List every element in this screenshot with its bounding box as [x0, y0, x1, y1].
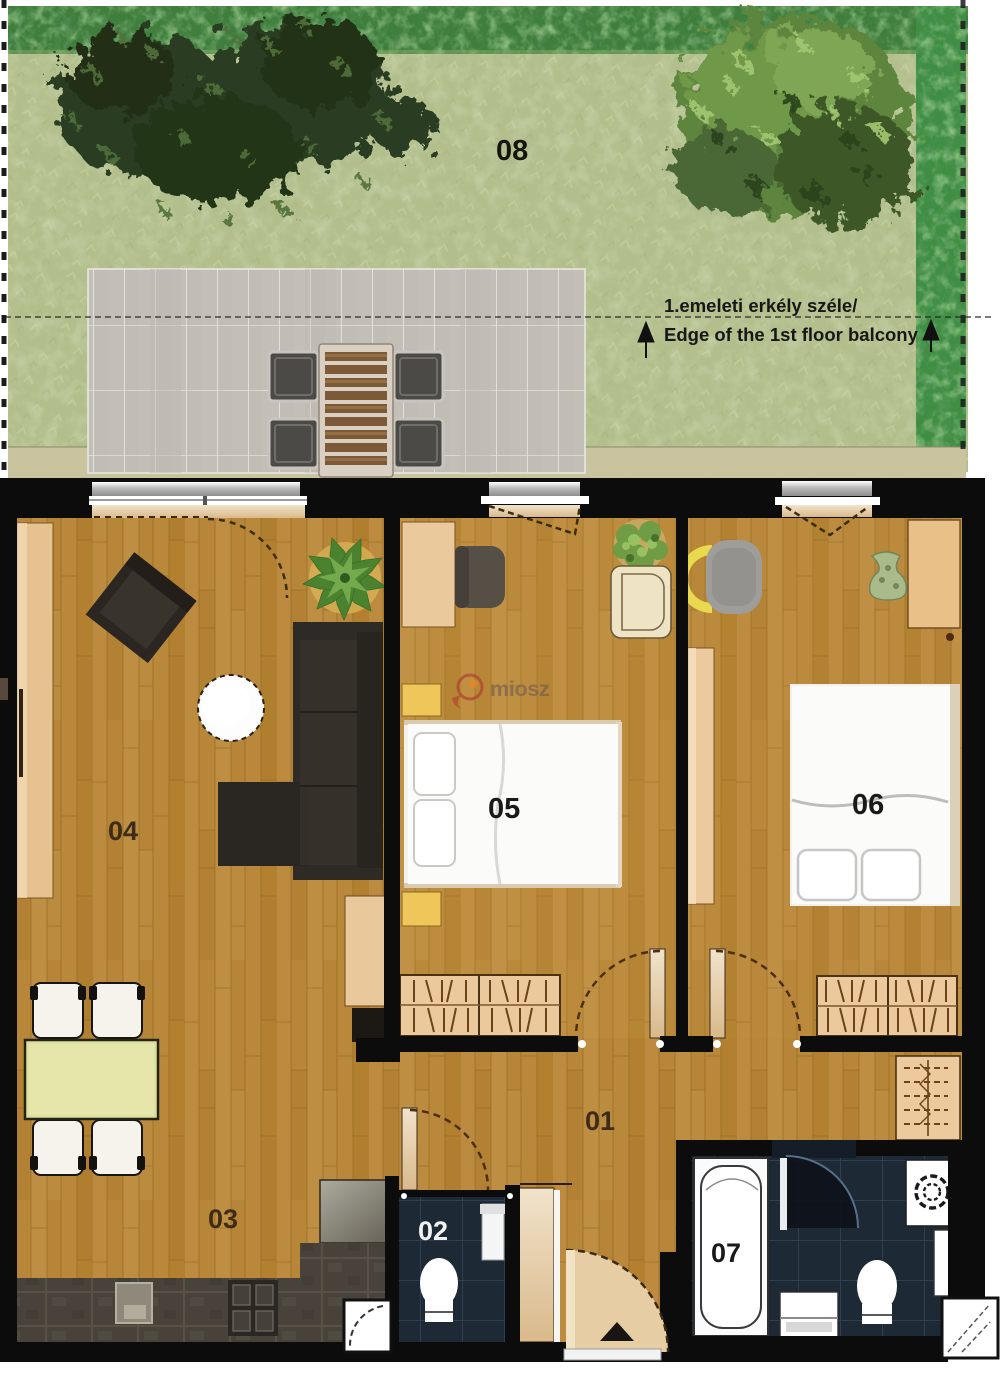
svg-text:08: 08: [496, 135, 528, 167]
svg-text:03: 03: [208, 1204, 238, 1234]
svg-text:1.emeleti erkély széle/: 1.emeleti erkély széle/: [664, 295, 857, 316]
svg-text:07: 07: [711, 1238, 741, 1268]
svg-text:06: 06: [852, 789, 884, 821]
svg-text:miosz: miosz: [490, 677, 549, 701]
svg-text:Edge of the 1st floor balcony: Edge of the 1st floor balcony: [664, 324, 919, 345]
svg-text:05: 05: [488, 793, 520, 825]
svg-text:04: 04: [108, 816, 138, 846]
svg-text:01: 01: [585, 1106, 615, 1136]
svg-text:02: 02: [418, 1216, 448, 1246]
